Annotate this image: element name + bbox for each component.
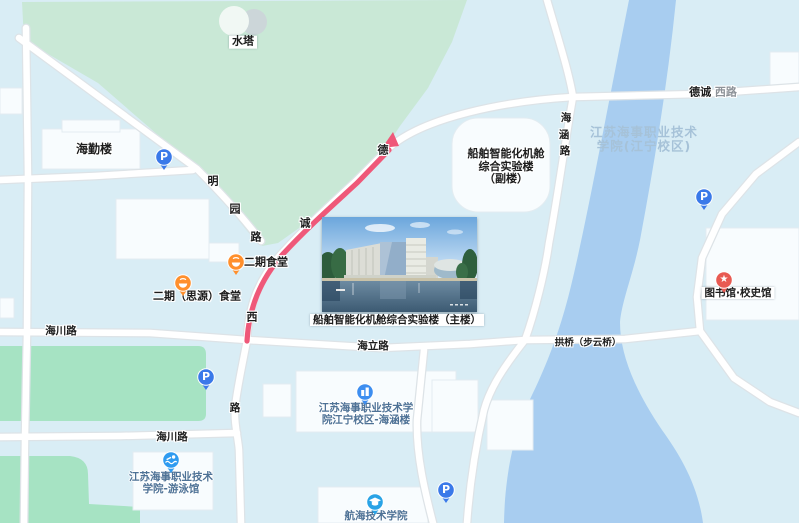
road-label-haichuan-lower: 海川路 bbox=[156, 431, 188, 443]
swimming-line-2: 学院-游泳馆 bbox=[129, 483, 213, 495]
building-misc-3 bbox=[0, 88, 22, 114]
road-label-haihan-1: 海 bbox=[561, 112, 572, 124]
library-star-glyph: ★ bbox=[715, 274, 733, 285]
road-label-route-de: 德 bbox=[378, 145, 389, 158]
swimming-pin-shape bbox=[162, 451, 180, 474]
campus-watermark: 江苏海事职业技术 学院(江宁校区) bbox=[590, 126, 698, 155]
parking-letter: P bbox=[695, 190, 713, 203]
restaurant-pin-shape bbox=[227, 253, 245, 276]
annex-line-1: 船舶智能化机舱 bbox=[468, 148, 545, 161]
haiqin-building-label[interactable]: 海勤楼 bbox=[76, 143, 112, 157]
building-haihan-west bbox=[263, 384, 291, 417]
college-icon[interactable] bbox=[366, 493, 384, 516]
annex-line-3: （副楼） bbox=[468, 173, 545, 186]
water-tower-label[interactable]: 水塔 bbox=[229, 36, 257, 49]
library-landmark-icon[interactable]: ★ bbox=[715, 271, 733, 294]
road-label-decheng-bold: 德诚 bbox=[689, 86, 711, 99]
campus-building-pin-shape bbox=[356, 383, 374, 406]
college-pin-shape bbox=[366, 493, 384, 516]
road-haichuan-lower bbox=[0, 433, 237, 437]
road-label-mingyuan-3: 路 bbox=[251, 232, 262, 245]
swimming-icon[interactable] bbox=[162, 451, 180, 474]
road-label-lu: 路 bbox=[230, 402, 241, 414]
restaurant-icon[interactable] bbox=[227, 253, 245, 276]
parking-icon[interactable]: P bbox=[197, 368, 215, 391]
annex-building-label[interactable]: 船舶智能化机舱 综合实验楼 （副楼） bbox=[468, 148, 545, 186]
building-photo-render bbox=[322, 217, 477, 312]
watermark-line-1: 江苏海事职业技术 bbox=[590, 126, 698, 140]
building-haiqin-top bbox=[62, 120, 120, 132]
road-label-route-xi: 西 bbox=[247, 312, 258, 325]
watermark-line-2: 学院(江宁校区) bbox=[590, 140, 698, 154]
parking-icon[interactable]: P bbox=[695, 188, 713, 211]
road-label-haichuan-upper: 海川路 bbox=[45, 325, 77, 337]
campus-map: 水塔 海勤楼 明 园 路 德 诚 西 德诚 西路 海 涵 路 船舶智能化机舱 综… bbox=[0, 0, 799, 523]
road-label-mingyuan-1: 明 bbox=[208, 176, 219, 189]
parking-letter: P bbox=[197, 370, 215, 383]
bridge-label: 拱桥（步云桥） bbox=[555, 339, 622, 350]
parking-icon[interactable]: P bbox=[437, 481, 455, 504]
building-misc-2 bbox=[487, 400, 533, 450]
library-label[interactable]: 图书馆·校史馆 bbox=[702, 287, 775, 299]
building-misc-5 bbox=[770, 52, 799, 88]
haihan-poi-line-2: 院江宁校区-海涵楼 bbox=[319, 414, 414, 426]
parking-letter: P bbox=[437, 483, 455, 496]
canteen-siyuan-label[interactable]: 二期（思源）食堂 bbox=[153, 291, 241, 304]
parking-icon[interactable]: P bbox=[155, 148, 173, 171]
road-label-route-cheng: 诚 bbox=[300, 218, 311, 231]
building-canteen bbox=[116, 199, 209, 259]
swimming-poi-label[interactable]: 江苏海事职业技术 学院-游泳馆 bbox=[129, 471, 213, 495]
building-misc-1 bbox=[432, 380, 478, 432]
building-misc-4 bbox=[0, 298, 14, 318]
campus-building-icon[interactable] bbox=[356, 383, 374, 406]
road-label-mingyuan-2: 园 bbox=[230, 204, 241, 217]
building-photo[interactable] bbox=[322, 217, 477, 312]
road-label-decheng-west: 德诚 西路 bbox=[689, 87, 737, 100]
water-tower-shape bbox=[219, 6, 267, 36]
restaurant-pin-shape bbox=[174, 274, 192, 297]
road-left-vertical bbox=[24, 28, 28, 523]
restaurant-icon[interactable] bbox=[174, 274, 192, 297]
road-label-decheng-suffix: 西路 bbox=[715, 86, 737, 99]
parking-letter: P bbox=[155, 150, 173, 163]
canteen-phase2-label[interactable]: 二期食堂 bbox=[244, 257, 288, 270]
road-label-haili: 海立路 bbox=[357, 340, 389, 352]
road-label-haihan-3: 路 bbox=[560, 145, 571, 157]
main-building-label[interactable]: 船舶智能化机舱综合实验楼（主楼） bbox=[310, 314, 484, 326]
road-label-haihan-2: 涵 bbox=[559, 129, 570, 141]
